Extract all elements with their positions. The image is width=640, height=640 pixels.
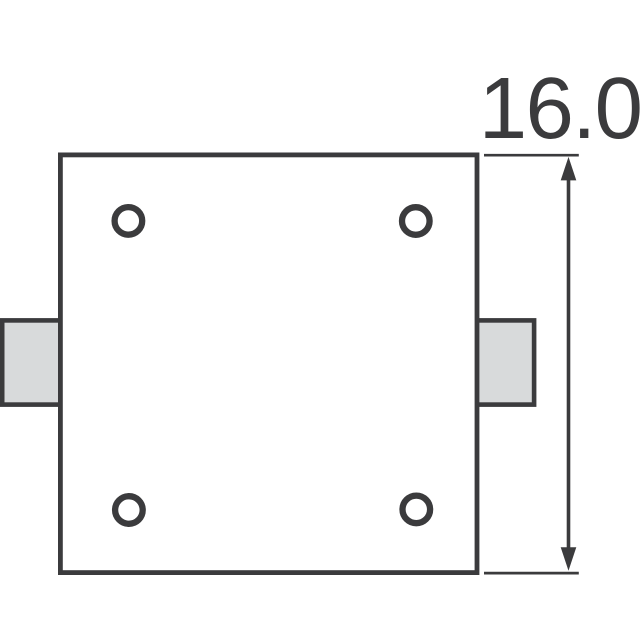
svg-text:16.0: 16.0 [479,60,640,157]
